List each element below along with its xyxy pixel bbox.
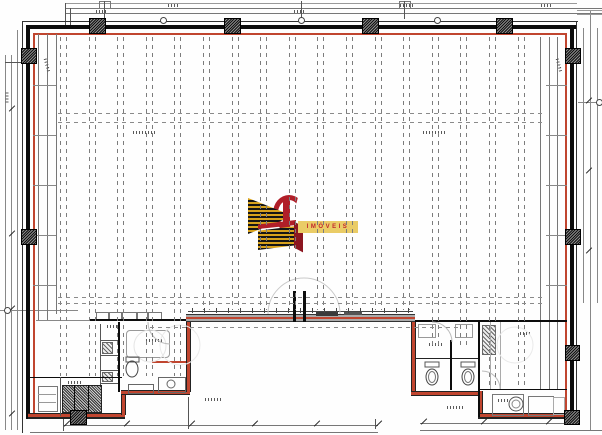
grid-line-vertical bbox=[146, 37, 147, 376]
grid-line-vertical bbox=[117, 37, 118, 376]
rung-line bbox=[33, 135, 56, 136]
grid-line-vertical bbox=[409, 37, 410, 310]
grid-line-horizontal bbox=[150, 327, 460, 328]
rung-line bbox=[546, 185, 567, 186]
column bbox=[224, 18, 241, 34]
grid-line-vertical bbox=[460, 37, 461, 345]
toilet-tank bbox=[461, 362, 475, 367]
curb-tick bbox=[348, 308, 349, 313]
rung-line bbox=[546, 85, 567, 86]
reference-bubble bbox=[596, 99, 602, 106]
column bbox=[565, 345, 580, 361]
reference-bubble bbox=[434, 17, 441, 24]
reference-bubble bbox=[4, 307, 11, 314]
rung-line bbox=[546, 285, 567, 286]
column bbox=[21, 48, 37, 64]
curb-tick bbox=[324, 308, 325, 313]
grid-line-horizontal bbox=[58, 113, 546, 114]
wash-basin bbox=[509, 397, 523, 411]
grid-line-vertical bbox=[203, 37, 204, 310]
curb-tick bbox=[384, 308, 385, 313]
rung-line bbox=[546, 235, 567, 236]
grid-line-vertical bbox=[60, 37, 61, 376]
grid-line-vertical bbox=[123, 37, 124, 376]
door-swing-arc bbox=[482, 371, 500, 389]
curb-tick bbox=[372, 308, 373, 313]
grid-line-vertical bbox=[432, 37, 433, 345]
ghost-circle bbox=[497, 327, 533, 363]
curb-tick bbox=[264, 308, 265, 313]
toilet-tank bbox=[425, 362, 439, 367]
column bbox=[565, 48, 581, 64]
wash-basin bbox=[167, 380, 175, 388]
curb-tick bbox=[228, 308, 229, 313]
curb-tick bbox=[396, 308, 397, 313]
logo-banner: IMÓVEIS bbox=[298, 221, 358, 233]
floor-plan-drawing: IMÓVEIS bbox=[0, 0, 602, 435]
column bbox=[21, 229, 37, 245]
curb-tick bbox=[216, 308, 217, 313]
grid-line-vertical bbox=[403, 37, 404, 310]
column bbox=[89, 18, 106, 34]
column bbox=[565, 229, 581, 245]
grid-line-vertical bbox=[323, 37, 324, 310]
grid-line-vertical bbox=[524, 37, 525, 389]
linework-overlay bbox=[0, 0, 602, 435]
column bbox=[70, 410, 87, 425]
curb-tick bbox=[240, 308, 241, 313]
curb-tick bbox=[288, 308, 289, 313]
column bbox=[362, 18, 379, 34]
curb-tick bbox=[312, 308, 313, 313]
grid-line-vertical bbox=[95, 37, 96, 376]
grid-line-vertical bbox=[152, 37, 153, 376]
grid-line-horizontal bbox=[58, 122, 546, 123]
grid-line-vertical bbox=[89, 37, 90, 376]
grid-line-vertical bbox=[66, 37, 67, 376]
rung-line bbox=[33, 85, 56, 86]
reference-bubble bbox=[160, 17, 167, 24]
grid-line-vertical bbox=[260, 37, 261, 310]
grid-line-vertical bbox=[295, 37, 296, 310]
toilet-bowl bbox=[429, 372, 436, 383]
grid-line-vertical bbox=[375, 37, 376, 310]
grid-line-vertical bbox=[495, 37, 496, 389]
grid-line-vertical bbox=[381, 37, 382, 310]
curb-tick bbox=[360, 308, 361, 313]
curb-tick bbox=[252, 308, 253, 313]
curb-tick bbox=[192, 308, 193, 313]
toilet bbox=[126, 361, 138, 377]
grid-line-vertical bbox=[174, 37, 175, 376]
grid-line-vertical bbox=[352, 37, 353, 310]
rung-line bbox=[33, 185, 56, 186]
door-swing-arc bbox=[432, 322, 452, 342]
grid-line-vertical bbox=[317, 37, 318, 310]
grid-line-vertical bbox=[518, 37, 519, 389]
wash-basin-inner bbox=[512, 400, 520, 408]
grid-line-horizontal bbox=[58, 297, 546, 298]
grid-line-vertical bbox=[346, 37, 347, 310]
curb-tick bbox=[276, 308, 277, 313]
rung-line bbox=[33, 285, 56, 286]
curb-tick bbox=[336, 308, 337, 313]
curb-tick bbox=[408, 308, 409, 313]
curb-tick bbox=[300, 308, 301, 313]
grid-line-vertical bbox=[489, 37, 490, 389]
reference-bubble bbox=[298, 17, 305, 24]
column bbox=[496, 18, 513, 34]
grid-line-vertical bbox=[266, 37, 267, 310]
grid-line-vertical bbox=[180, 37, 181, 376]
grid-line-vertical bbox=[466, 37, 467, 345]
toilet-bowl bbox=[465, 372, 472, 383]
curb-tick bbox=[204, 308, 205, 313]
grid-line-vertical bbox=[289, 37, 290, 310]
grid-line-vertical bbox=[232, 37, 233, 310]
door-swing-arc bbox=[268, 278, 340, 314]
grid-line-vertical bbox=[209, 37, 210, 310]
rung-line bbox=[546, 135, 567, 136]
grid-line-horizontal bbox=[58, 303, 546, 304]
grid-line-vertical bbox=[438, 37, 439, 345]
grid-line-vertical bbox=[238, 37, 239, 310]
